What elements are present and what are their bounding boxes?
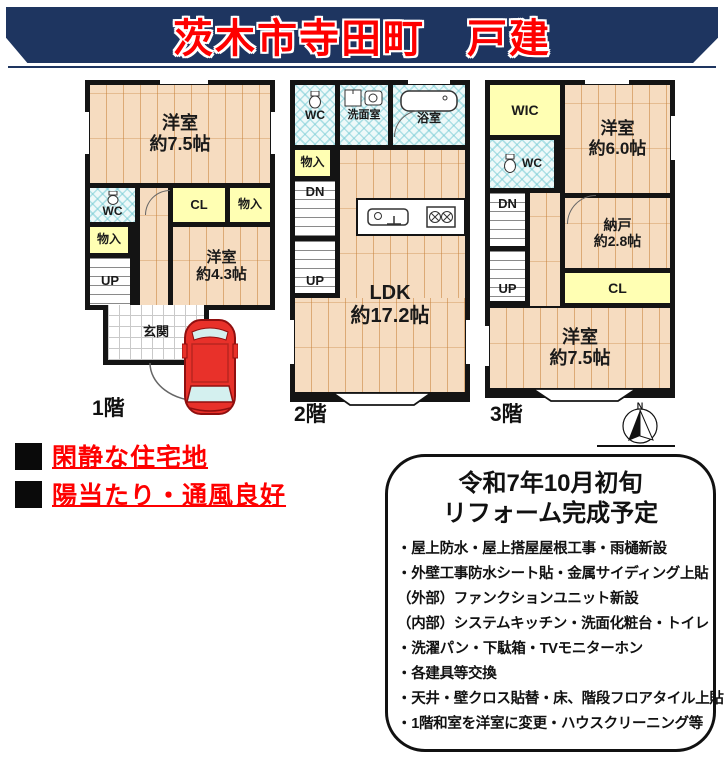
window-mark [671, 116, 675, 160]
feature-text-2: 陽当たり・通風良好 [52, 476, 286, 512]
renovation-item: ・各建具等交換 [397, 662, 713, 687]
banner-underline [8, 66, 716, 68]
renovation-item: ・1階和室を洋室に変更・ハウスクリーニング等 [397, 712, 713, 737]
renovation-title-line1: 令和7年10月初旬 [388, 469, 713, 499]
window-mark [85, 112, 89, 154]
renovation-item: （内部）システムキッチン・洗面化粧台・トイレ [397, 612, 713, 637]
renovation-item: ・天井・壁クロス貼替・床、階段フロアタイル上貼 [397, 687, 713, 712]
kitchen-counter [356, 198, 466, 236]
window-mark [271, 112, 275, 154]
floor-label-3f: 3階 [490, 398, 523, 428]
stairs-up-1f: UP [90, 258, 130, 305]
renovation-item: ・外壁工事防水シート貼・金属サイディング上貼 [397, 562, 713, 587]
hallway-3f [530, 193, 560, 306]
room-wc-1f-label: WC [103, 205, 123, 219]
feature-bullet-square [15, 443, 42, 470]
washer-icon [344, 89, 384, 109]
room-ldk-label: LDK 約17.2帖 [320, 275, 460, 335]
compass-north-label: N [637, 401, 644, 411]
room-western-7-5-3f: 洋室 約7.5帖 [490, 308, 670, 388]
closet-cl-3f: CL [565, 273, 670, 303]
bathtub-icon [400, 90, 458, 112]
bay-window-2f [332, 392, 432, 407]
page-title: 茨木市寺田町 戸建 [173, 6, 551, 64]
window-mark [485, 326, 489, 366]
stairs-up-3f: UP [490, 251, 525, 301]
renovation-item-list: ・屋上防水・屋上搭屋屋根工事・雨樋新設 ・外壁工事防水シート貼・金属サイディング… [388, 537, 713, 737]
floorplan-1f: 洋室 約7.5帖 WC CL 物入 物入 UP 洋室 約4.3帖 [85, 80, 275, 310]
room-western-7-5-1f: 洋室 約7.5帖 [90, 85, 270, 183]
feature-text-1: 閑静な住宅地 [52, 438, 208, 474]
car-icon [182, 318, 238, 416]
room-western-6-0-3f: 洋室 約6.0帖 [565, 85, 670, 193]
storage-left-1f: 物入 [90, 227, 128, 253]
window-mark [290, 320, 294, 364]
room-senmen-2f-label: 洗面室 [348, 109, 381, 122]
compass-icon: N [617, 400, 663, 446]
title-banner: 茨木市寺田町 戸建 [6, 7, 718, 63]
stove-icon [426, 206, 456, 228]
renovation-item: （外部）ファンクションユニット新設 [397, 587, 713, 612]
room-wc-2f: WC [295, 85, 335, 145]
window-mark [160, 80, 208, 84]
floorplan-2f: WC 洗面室 浴室 物入 DN UP LDK 約17.2帖 [290, 80, 470, 402]
window-mark [585, 80, 629, 84]
sink-icon [367, 206, 409, 228]
renovation-item: ・屋上防水・屋上搭屋屋根工事・雨樋新設 [397, 537, 713, 562]
closet-wic-3f: WIC [490, 85, 560, 135]
toilet-icon [502, 154, 518, 174]
closet-cl-1f: CL [173, 188, 225, 222]
flyer-page: 茨木市寺田町 戸建 洋室 約7.5帖 WC CL 物入 物入 UP 洋室 約4.… [0, 0, 725, 768]
floorplan-3f: WIC 洋室 約6.0帖 WC DN UP 納戸 約2.8帖 CL 洋室 約7.… [485, 80, 675, 398]
toilet-icon [105, 191, 121, 205]
compass-baseline [597, 445, 675, 447]
window-mark [408, 80, 450, 84]
window-mark [466, 320, 470, 364]
renovation-item: ・洗濯パン・下駄箱・TVモニターホン [397, 637, 713, 662]
room-senmen-2f: 洗面室 [340, 85, 388, 145]
feature-bullet-square [15, 481, 42, 508]
stairs-dn-3f: DN [490, 193, 525, 246]
toilet-icon [307, 91, 323, 109]
storage-2f: 物入 [295, 150, 330, 176]
room-western-4-3-1f: 洋室 約4.3帖 [173, 227, 270, 305]
stairs-dn-2f: DN [295, 181, 335, 236]
renovation-info-box: 令和7年10月初旬 リフォーム完成予定 ・屋上防水・屋上搭屋屋根工事・雨樋新設 … [385, 454, 716, 752]
room-wc-2f-label: WC [305, 109, 325, 123]
renovation-title-line2: リフォーム完成予定 [388, 499, 713, 529]
room-wc-3f: WC [490, 140, 554, 188]
floor-label-2f: 2階 [294, 398, 327, 428]
floor-label-1f: 1階 [92, 392, 125, 422]
room-wc-3f-label: WC [522, 157, 542, 171]
storage-right-1f: 物入 [230, 188, 270, 222]
room-wc-1f: WC [90, 188, 135, 222]
